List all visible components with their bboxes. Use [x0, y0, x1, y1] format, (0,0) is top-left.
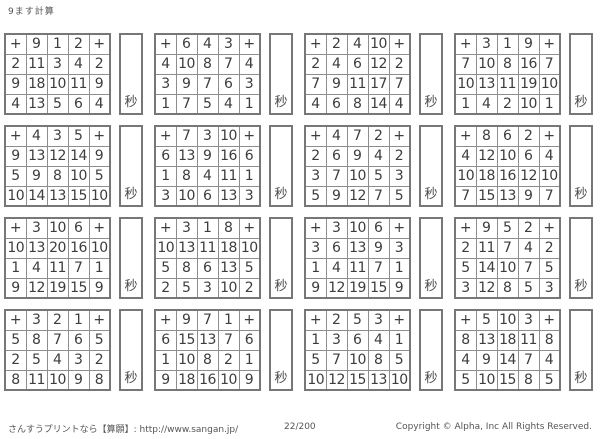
right-operand-cell: 5: [539, 370, 560, 390]
calc-grid-table: +2410+2461227911177468144: [304, 33, 411, 115]
answer-cell: 11: [476, 238, 497, 258]
calc-grid-block: +318+1013111810586135253102秒: [154, 217, 293, 299]
left-operand-cell: 9: [5, 146, 26, 166]
answer-cell: 12: [476, 146, 497, 166]
plus-sign-cell: +: [389, 218, 410, 238]
answer-cell: 6: [518, 146, 539, 166]
left-operand-cell: 1: [155, 350, 176, 370]
calc-grid-block: +952+2117425141075312853秒: [454, 217, 593, 299]
right-operand-cell: 1: [239, 350, 260, 370]
answer-cell: 7: [197, 74, 218, 94]
left-operand-cell: 8: [455, 330, 476, 350]
plus-sign-cell: +: [539, 126, 560, 146]
seconds-box: 秒: [119, 217, 143, 299]
plus-sign-cell: +: [89, 34, 110, 54]
answer-cell: 2: [497, 94, 518, 114]
calc-grid-table: +318+1013111810586135253102: [154, 217, 261, 299]
answer-cell: 16: [197, 370, 218, 390]
top-operand-cell: 6: [497, 126, 518, 146]
top-operand-cell: 5: [347, 310, 368, 330]
right-operand-cell: 2: [389, 54, 410, 74]
answer-cell: 10: [176, 54, 197, 74]
seconds-box: 秒: [269, 217, 293, 299]
calc-grid-block: +971+615137611082191816109秒: [154, 309, 293, 391]
right-operand-cell: 3: [389, 166, 410, 186]
left-operand-cell: 1: [305, 330, 326, 350]
calc-grid-table: +862+412106410181612107151397: [454, 125, 561, 207]
right-operand-cell: 10: [89, 186, 110, 206]
answer-cell: 5: [368, 166, 389, 186]
answer-cell: 10: [476, 54, 497, 74]
answer-cell: 14: [476, 258, 497, 278]
right-operand-cell: 1: [539, 94, 560, 114]
top-operand-cell: 9: [518, 34, 539, 54]
top-operand-cell: 7: [197, 310, 218, 330]
right-operand-cell: 1: [389, 330, 410, 350]
answer-cell: 10: [218, 370, 239, 390]
top-operand-cell: 2: [47, 310, 68, 330]
answer-cell: 10: [347, 350, 368, 370]
seconds-label: 秒: [124, 183, 137, 205]
right-operand-cell: 7: [539, 54, 560, 74]
left-operand-cell: 4: [455, 350, 476, 370]
right-operand-cell: 4: [239, 54, 260, 74]
left-operand-cell: 10: [455, 166, 476, 186]
seconds-label: 秒: [274, 275, 287, 297]
answer-cell: 11: [497, 74, 518, 94]
left-operand-cell: 9: [305, 278, 326, 298]
plus-sign-cell: +: [239, 34, 260, 54]
answer-cell: 8: [176, 166, 197, 186]
answer-cell: 8: [347, 94, 368, 114]
answer-cell: 7: [497, 238, 518, 258]
right-operand-cell: 9: [239, 370, 260, 390]
top-operand-cell: 4: [26, 126, 47, 146]
left-operand-cell: 5: [5, 166, 26, 186]
top-operand-cell: 1: [68, 310, 89, 330]
left-operand-cell: 3: [155, 74, 176, 94]
top-operand-cell: 4: [326, 126, 347, 146]
left-operand-cell: 2: [455, 238, 476, 258]
plus-sign-cell: +: [539, 310, 560, 330]
answer-cell: 6: [326, 238, 347, 258]
answer-cell: 4: [197, 166, 218, 186]
seconds-box: 秒: [419, 125, 443, 207]
answer-cell: 7: [326, 166, 347, 186]
left-operand-cell: 9: [155, 370, 176, 390]
left-operand-cell: 4: [305, 94, 326, 114]
worksheet-grid-container: +912+21134291810119413564秒+643+410874397…: [4, 33, 600, 391]
answer-cell: 5: [197, 94, 218, 114]
plus-sign-cell: +: [455, 34, 476, 54]
top-operand-cell: 2: [368, 126, 389, 146]
top-operand-cell: 3: [518, 310, 539, 330]
answer-cell: 19: [347, 278, 368, 298]
answer-cell: 10: [497, 258, 518, 278]
answer-cell: 15: [497, 370, 518, 390]
top-operand-cell: 5: [497, 218, 518, 238]
right-operand-cell: 9: [89, 146, 110, 166]
calc-grid-block: +472+26942371053591275秒: [304, 125, 443, 207]
answer-cell: 12: [326, 370, 347, 390]
left-operand-cell: 5: [305, 186, 326, 206]
answer-cell: 15: [476, 186, 497, 206]
answer-cell: 4: [218, 94, 239, 114]
plus-sign-cell: +: [89, 310, 110, 330]
calc-grid-block: +435+913121495981051014131510秒: [4, 125, 143, 207]
left-operand-cell: 2: [305, 54, 326, 74]
answer-cell: 18: [176, 370, 197, 390]
answer-cell: 6: [197, 258, 218, 278]
top-operand-cell: 6: [68, 218, 89, 238]
answer-cell: 12: [47, 146, 68, 166]
answer-cell: 4: [368, 330, 389, 350]
answer-cell: 5: [26, 350, 47, 370]
calc-grid-block: +7310+61391661841113106133秒: [154, 125, 293, 207]
answer-cell: 7: [368, 258, 389, 278]
answer-cell: 10: [68, 166, 89, 186]
left-operand-cell: 2: [155, 278, 176, 298]
top-operand-cell: 10: [368, 34, 389, 54]
answer-cell: 7: [218, 54, 239, 74]
plus-sign-cell: +: [389, 126, 410, 146]
left-operand-cell: 3: [455, 278, 476, 298]
calc-grid-block: +253+136415710851012151310秒: [304, 309, 443, 391]
left-operand-cell: 5: [455, 258, 476, 278]
seconds-box: 秒: [119, 309, 143, 391]
left-operand-cell: 5: [155, 258, 176, 278]
left-operand-cell: 10: [305, 370, 326, 390]
plus-sign-cell: +: [155, 126, 176, 146]
seconds-label: 秒: [424, 91, 437, 113]
right-operand-cell: 9: [89, 74, 110, 94]
right-operand-cell: 2: [539, 238, 560, 258]
answer-cell: 15: [68, 186, 89, 206]
answer-cell: 10: [497, 146, 518, 166]
top-operand-cell: 4: [197, 34, 218, 54]
answer-cell: 14: [497, 350, 518, 370]
seconds-box: 秒: [269, 309, 293, 391]
answer-cell: 6: [68, 94, 89, 114]
seconds-box: 秒: [419, 33, 443, 115]
answer-cell: 10: [218, 278, 239, 298]
calc-grid-table: +435+913121495981051014131510: [4, 125, 111, 207]
calc-grid-block: +862+412106410181612107151397秒: [454, 125, 593, 207]
answer-cell: 16: [497, 166, 518, 186]
answer-cell: 6: [326, 94, 347, 114]
answer-cell: 6: [197, 186, 218, 206]
right-operand-cell: 10: [89, 238, 110, 258]
answer-cell: 19: [518, 74, 539, 94]
seconds-label: 秒: [274, 91, 287, 113]
answer-cell: 10: [347, 166, 368, 186]
answer-cell: 4: [518, 238, 539, 258]
answer-cell: 13: [218, 258, 239, 278]
calc-grid-block: +643+4108743976317541秒: [154, 33, 293, 115]
answer-cell: 8: [368, 350, 389, 370]
seconds-box: 秒: [569, 309, 593, 391]
answer-cell: 3: [68, 350, 89, 370]
answer-cell: 13: [218, 186, 239, 206]
top-operand-cell: 7: [176, 126, 197, 146]
answer-cell: 13: [497, 186, 518, 206]
right-operand-cell: 1: [239, 94, 260, 114]
right-operand-cell: 2: [389, 146, 410, 166]
footer-site-credit: さんすうプリントなら【算願】: http://www.sangan.jp/: [8, 422, 238, 435]
left-operand-cell: 5: [5, 330, 26, 350]
answer-cell: 10: [176, 186, 197, 206]
answer-cell: 12: [26, 278, 47, 298]
answer-cell: 13: [26, 146, 47, 166]
answer-cell: 11: [347, 258, 368, 278]
top-operand-cell: 1: [47, 34, 68, 54]
right-operand-cell: 5: [89, 330, 110, 350]
left-operand-cell: 9: [5, 74, 26, 94]
answer-cell: 13: [476, 330, 497, 350]
top-operand-cell: 3: [197, 126, 218, 146]
left-operand-cell: 5: [305, 350, 326, 370]
calc-grid-block: +912+21134291810119413564秒: [4, 33, 143, 115]
answer-cell: 12: [476, 278, 497, 298]
right-operand-cell: 5: [539, 258, 560, 278]
answer-cell: 6: [326, 146, 347, 166]
right-operand-cell: 9: [89, 278, 110, 298]
top-operand-cell: 10: [497, 310, 518, 330]
left-operand-cell: 7: [305, 74, 326, 94]
seconds-label: 秒: [574, 367, 587, 389]
answer-cell: 18: [218, 238, 239, 258]
answer-cell: 10: [176, 350, 197, 370]
seconds-label: 秒: [424, 183, 437, 205]
seconds-label: 秒: [574, 275, 587, 297]
plus-sign-cell: +: [5, 126, 26, 146]
top-operand-cell: 8: [476, 126, 497, 146]
answer-cell: 18: [497, 330, 518, 350]
top-operand-cell: 8: [218, 218, 239, 238]
seconds-box: 秒: [119, 125, 143, 207]
right-operand-cell: 10: [389, 370, 410, 390]
right-operand-cell: 6: [239, 330, 260, 350]
plus-sign-cell: +: [155, 310, 176, 330]
seconds-label: 秒: [574, 183, 587, 205]
answer-cell: 4: [368, 146, 389, 166]
top-operand-cell: 3: [368, 310, 389, 330]
top-operand-cell: 9: [26, 34, 47, 54]
calc-grid-table: +5103+813181184914745101585: [454, 309, 561, 391]
right-operand-cell: 5: [239, 258, 260, 278]
plus-sign-cell: +: [389, 310, 410, 330]
top-operand-cell: 2: [68, 34, 89, 54]
left-operand-cell: 10: [455, 74, 476, 94]
top-operand-cell: 10: [218, 126, 239, 146]
right-operand-cell: 7: [389, 74, 410, 94]
answer-cell: 11: [26, 54, 47, 74]
calc-grid-table: +472+26942371053591275: [304, 125, 411, 207]
plus-sign-cell: +: [89, 126, 110, 146]
answer-cell: 7: [518, 350, 539, 370]
calc-grid-table: +321+58765254328111098: [4, 309, 111, 391]
answer-cell: 12: [347, 186, 368, 206]
plus-sign-cell: +: [305, 34, 326, 54]
left-operand-cell: 3: [305, 166, 326, 186]
plus-sign-cell: +: [539, 34, 560, 54]
plus-sign-cell: +: [455, 310, 476, 330]
left-operand-cell: 2: [5, 54, 26, 74]
seconds-label: 秒: [124, 275, 137, 297]
left-operand-cell: 2: [305, 146, 326, 166]
seconds-box: 秒: [269, 33, 293, 115]
answer-cell: 11: [218, 166, 239, 186]
top-operand-cell: 7: [347, 126, 368, 146]
answer-cell: 6: [347, 330, 368, 350]
left-operand-cell: 7: [455, 54, 476, 74]
left-operand-cell: 7: [455, 186, 476, 206]
answer-cell: 8: [497, 278, 518, 298]
plus-sign-cell: +: [389, 34, 410, 54]
top-operand-cell: 2: [518, 218, 539, 238]
left-operand-cell: 1: [155, 94, 176, 114]
answer-cell: 7: [368, 186, 389, 206]
calc-grid-table: +253+136415710851012151310: [304, 309, 411, 391]
answer-cell: 10: [47, 370, 68, 390]
right-operand-cell: 4: [539, 350, 560, 370]
answer-cell: 2: [218, 350, 239, 370]
calc-grid-table: +643+4108743976317541: [154, 33, 261, 115]
top-operand-cell: 1: [197, 218, 218, 238]
answer-cell: 7: [47, 330, 68, 350]
right-operand-cell: 8: [539, 330, 560, 350]
plus-sign-cell: +: [155, 218, 176, 238]
answer-cell: 15: [347, 370, 368, 390]
calc-grid-table: +971+615137611082191816109: [154, 309, 261, 391]
plus-sign-cell: +: [5, 218, 26, 238]
top-operand-cell: 3: [476, 34, 497, 54]
answer-cell: 12: [518, 166, 539, 186]
answer-cell: 13: [47, 186, 68, 206]
left-operand-cell: 10: [5, 238, 26, 258]
page-title: 9ます計算: [8, 4, 55, 17]
answer-cell: 13: [26, 238, 47, 258]
answer-cell: 9: [347, 146, 368, 166]
left-operand-cell: 6: [155, 146, 176, 166]
plus-sign-cell: +: [305, 126, 326, 146]
right-operand-cell: 2: [89, 54, 110, 74]
answer-cell: 7: [218, 330, 239, 350]
right-operand-cell: 10: [539, 74, 560, 94]
top-operand-cell: 3: [326, 218, 347, 238]
calc-grid-block: +2410+2461227911177468144秒: [304, 33, 443, 115]
answer-cell: 9: [26, 166, 47, 186]
answer-cell: 10: [47, 74, 68, 94]
top-operand-cell: 2: [326, 34, 347, 54]
answer-cell: 14: [26, 186, 47, 206]
left-operand-cell: 9: [5, 278, 26, 298]
answer-cell: 9: [68, 370, 89, 390]
right-operand-cell: 7: [539, 186, 560, 206]
answer-cell: 10: [518, 94, 539, 114]
answer-cell: 6: [347, 54, 368, 74]
left-operand-cell: 8: [5, 370, 26, 390]
top-operand-cell: 4: [347, 34, 368, 54]
calc-grid-table: +3106+36139314117191219159: [304, 217, 411, 299]
seconds-label: 秒: [124, 367, 137, 389]
top-operand-cell: 2: [326, 310, 347, 330]
plus-sign-cell: +: [305, 218, 326, 238]
left-operand-cell: 1: [305, 258, 326, 278]
page-footer: さんすうプリントなら【算願】: http://www.sangan.jp/ 22…: [0, 422, 600, 434]
answer-cell: 13: [26, 94, 47, 114]
right-operand-cell: 5: [389, 186, 410, 206]
plus-sign-cell: +: [5, 34, 26, 54]
answer-cell: 7: [518, 258, 539, 278]
top-operand-cell: 9: [476, 218, 497, 238]
answer-cell: 18: [476, 166, 497, 186]
right-operand-cell: 3: [539, 278, 560, 298]
seconds-label: 秒: [424, 275, 437, 297]
right-operand-cell: 2: [89, 350, 110, 370]
plus-sign-cell: +: [455, 218, 476, 238]
answer-cell: 4: [326, 54, 347, 74]
answer-cell: 3: [197, 278, 218, 298]
left-operand-cell: 3: [155, 186, 176, 206]
seconds-label: 秒: [274, 367, 287, 389]
right-operand-cell: 1: [389, 258, 410, 278]
answer-cell: 7: [176, 94, 197, 114]
plus-sign-cell: +: [455, 126, 476, 146]
answer-cell: 11: [47, 258, 68, 278]
top-operand-cell: 3: [47, 126, 68, 146]
right-operand-cell: 3: [389, 238, 410, 258]
answer-cell: 14: [68, 146, 89, 166]
answer-cell: 7: [326, 350, 347, 370]
plus-sign-cell: +: [5, 310, 26, 330]
left-operand-cell: 1: [5, 258, 26, 278]
left-operand-cell: 4: [5, 94, 26, 114]
right-operand-cell: 6: [239, 146, 260, 166]
right-operand-cell: 9: [389, 278, 410, 298]
answer-cell: 11: [197, 238, 218, 258]
answer-cell: 8: [176, 258, 197, 278]
answer-cell: 11: [347, 74, 368, 94]
plus-sign-cell: +: [239, 126, 260, 146]
right-operand-cell: 2: [239, 278, 260, 298]
calc-grid-block: +3106+36139314117191219159秒: [304, 217, 443, 299]
answer-cell: 9: [476, 350, 497, 370]
plus-sign-cell: +: [539, 218, 560, 238]
right-operand-cell: 1: [239, 166, 260, 186]
left-operand-cell: 1: [155, 166, 176, 186]
answer-cell: 9: [197, 146, 218, 166]
calc-grid-table: +319+71081671013111910142101: [454, 33, 561, 115]
top-operand-cell: 6: [368, 218, 389, 238]
top-operand-cell: 10: [347, 218, 368, 238]
right-operand-cell: 3: [239, 186, 260, 206]
answer-cell: 13: [347, 238, 368, 258]
plus-sign-cell: +: [155, 34, 176, 54]
calc-grid-table: +952+2117425141075312853: [454, 217, 561, 299]
answer-cell: 8: [47, 166, 68, 186]
top-operand-cell: 5: [476, 310, 497, 330]
answer-cell: 8: [197, 350, 218, 370]
answer-cell: 13: [176, 146, 197, 166]
answer-cell: 5: [176, 278, 197, 298]
answer-cell: 19: [47, 278, 68, 298]
footer-page-number: 22/200: [284, 422, 316, 432]
top-operand-cell: 1: [497, 34, 518, 54]
answer-cell: 8: [518, 370, 539, 390]
plus-sign-cell: +: [305, 310, 326, 330]
answer-cell: 9: [326, 74, 347, 94]
